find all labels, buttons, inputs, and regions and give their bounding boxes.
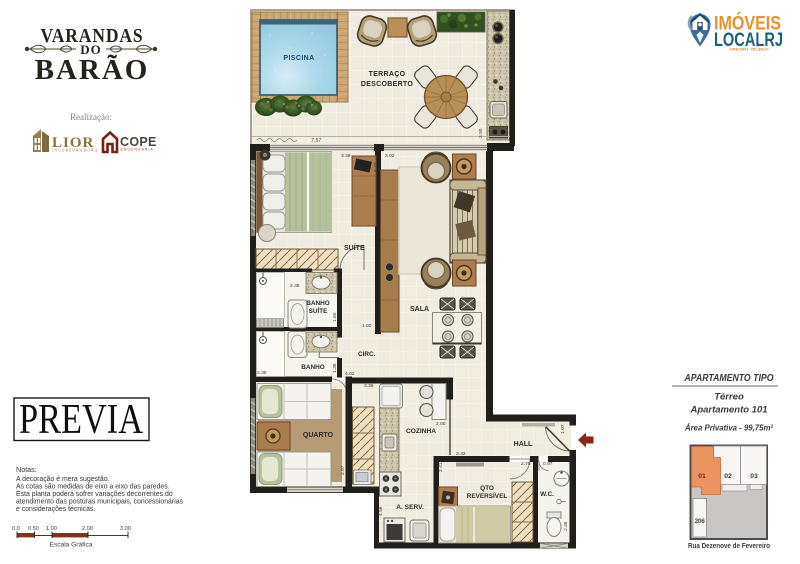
svg-text:02: 02 xyxy=(724,473,732,480)
svg-text:3.38: 3.38 xyxy=(341,153,351,159)
svg-text:A decoração é mera sugestã: A decoração é mera sugestão. xyxy=(16,476,110,483)
svg-text:4.56: 4.56 xyxy=(378,506,384,516)
svg-text:SUÍTE: SUÍTE xyxy=(344,243,365,252)
svg-text:6.37: 6.37 xyxy=(373,162,379,172)
svg-text:Notas:: Notas: xyxy=(16,465,37,474)
svg-text:2.38: 2.38 xyxy=(257,370,267,376)
svg-text:W.C.: W.C. xyxy=(540,491,554,498)
svg-text:1.35: 1.35 xyxy=(332,363,338,373)
svg-text:SUÍTE: SUÍTE xyxy=(309,306,329,315)
svg-text:2.00: 2.00 xyxy=(436,421,446,427)
svg-text:3.00: 3.00 xyxy=(120,526,131,532)
svg-text:Rua Dezenove de Fevereiro: Rua Dezenove de Fevereiro xyxy=(688,541,771,550)
svg-text:Área Privativa - 99,75m²: Área Privativa - 99,75m² xyxy=(684,424,773,433)
svg-text:3.38: 3.38 xyxy=(364,383,374,389)
svg-text:2.26: 2.26 xyxy=(563,521,569,531)
svg-text:1.60: 1.60 xyxy=(332,312,338,322)
svg-text:Esta planta poderá sofrer: Esta planta poderá sofrer variações deco… xyxy=(16,491,173,498)
svg-text:HALL: HALL xyxy=(514,441,533,448)
svg-text:COZINHA: COZINHA xyxy=(406,428,436,435)
svg-text:1.00: 1.00 xyxy=(362,323,372,329)
svg-text:0.0: 0.0 xyxy=(12,526,20,532)
svg-text:03: 03 xyxy=(750,473,758,480)
svg-text:BARÃO: BARÃO xyxy=(35,53,150,86)
svg-text:2.38: 2.38 xyxy=(290,283,300,289)
svg-text:2.97: 2.97 xyxy=(340,465,346,475)
svg-text:206: 206 xyxy=(695,519,706,525)
svg-text:3.50: 3.50 xyxy=(478,128,484,138)
svg-text:e considerações técnicas.: e considerações técnicas. xyxy=(16,506,95,513)
svg-text:PISCINA: PISCINA xyxy=(283,55,314,62)
svg-text:ENGENHARIA: ENGENHARIA xyxy=(121,148,154,152)
svg-text:3.32: 3.32 xyxy=(456,451,466,457)
svg-text:APARTAMENTO TIPO: APARTAMENTO TIPO xyxy=(684,373,774,384)
svg-text:SALA: SALA xyxy=(410,306,429,313)
svg-text:2.41: 2.41 xyxy=(438,462,444,472)
svg-text:Apartamento 101: Apartamento 101 xyxy=(689,405,767,416)
svg-text:CIRC.: CIRC. xyxy=(358,351,376,358)
svg-text:1.00: 1.00 xyxy=(46,526,57,532)
svg-text:PREVIA: PREVIA xyxy=(19,397,144,443)
svg-text:Realização:: Realização: xyxy=(70,112,112,122)
svg-text:7.57: 7.57 xyxy=(311,138,322,144)
svg-text:BANHO: BANHO xyxy=(301,364,324,371)
svg-text:0.97: 0.97 xyxy=(543,461,553,467)
svg-text:As cotas são medidas de e: As cotas são medidas de eixo a eixo das … xyxy=(16,484,170,491)
svg-text:BANHO: BANHO xyxy=(306,300,329,307)
svg-text:0.50: 0.50 xyxy=(28,526,39,532)
svg-text:TERRAÇO: TERRAÇO xyxy=(369,71,406,78)
svg-text:atendimento das posturas munic: atendimento das posturas municipais, con… xyxy=(16,499,184,506)
svg-text:3.02: 3.02 xyxy=(385,153,395,159)
svg-text:1.07: 1.07 xyxy=(560,424,566,434)
svg-text:Térreo: Térreo xyxy=(714,392,744,403)
svg-text:REVERSÍVEL: REVERSÍVEL xyxy=(467,491,508,500)
svg-text:DESCOBERTO: DESCOBERTO xyxy=(361,81,414,88)
svg-text:INCORPORADORA: INCORPORADORA xyxy=(52,149,99,153)
svg-text:4.02: 4.02 xyxy=(345,371,355,377)
svg-text:A. SERV.: A. SERV. xyxy=(396,504,424,511)
svg-text:3.42: 3.42 xyxy=(249,228,255,238)
svg-text:Escala Gráfica: Escala Gráfica xyxy=(50,542,93,549)
svg-text:2.00: 2.00 xyxy=(82,526,93,532)
svg-text:01: 01 xyxy=(698,473,706,480)
svg-text:2.75: 2.75 xyxy=(521,461,531,467)
svg-text:QUARTO: QUARTO xyxy=(303,432,334,439)
svg-text:QTO: QTO xyxy=(480,485,494,492)
svg-text:CRECI/RJ: 051.306/O: CRECI/RJ: 051.306/O xyxy=(730,47,769,52)
